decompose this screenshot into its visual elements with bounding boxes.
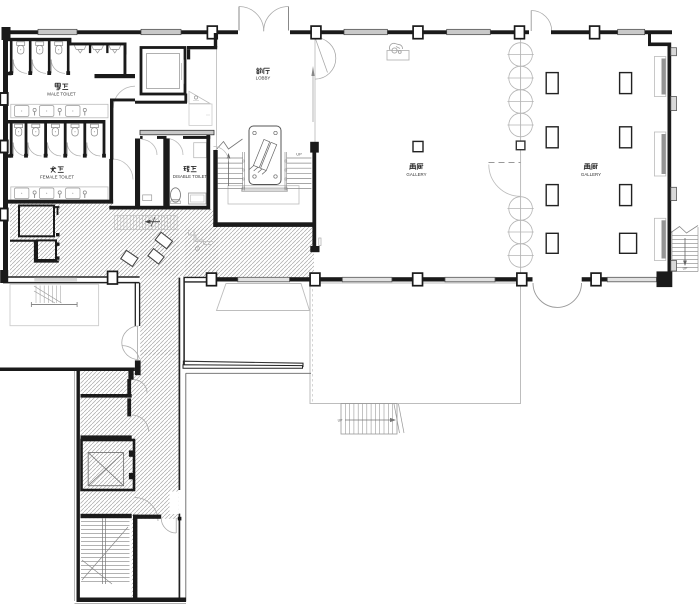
svg-text:GALLERY: GALLERY [581,172,601,177]
svg-text:UP: UP [338,419,343,423]
svg-text:UP: UP [683,267,688,271]
svg-text:LOBBY: LOBBY [256,76,271,81]
svg-text:FEMALE TOILET: FEMALE TOILET [40,174,74,179]
svg-text:DISABLE TOILET: DISABLE TOILET [173,174,208,179]
svg-text:MALE TOILET: MALE TOILET [47,92,76,97]
svg-text:UP: UP [296,152,302,157]
svg-text:GALLERY: GALLERY [406,172,426,177]
